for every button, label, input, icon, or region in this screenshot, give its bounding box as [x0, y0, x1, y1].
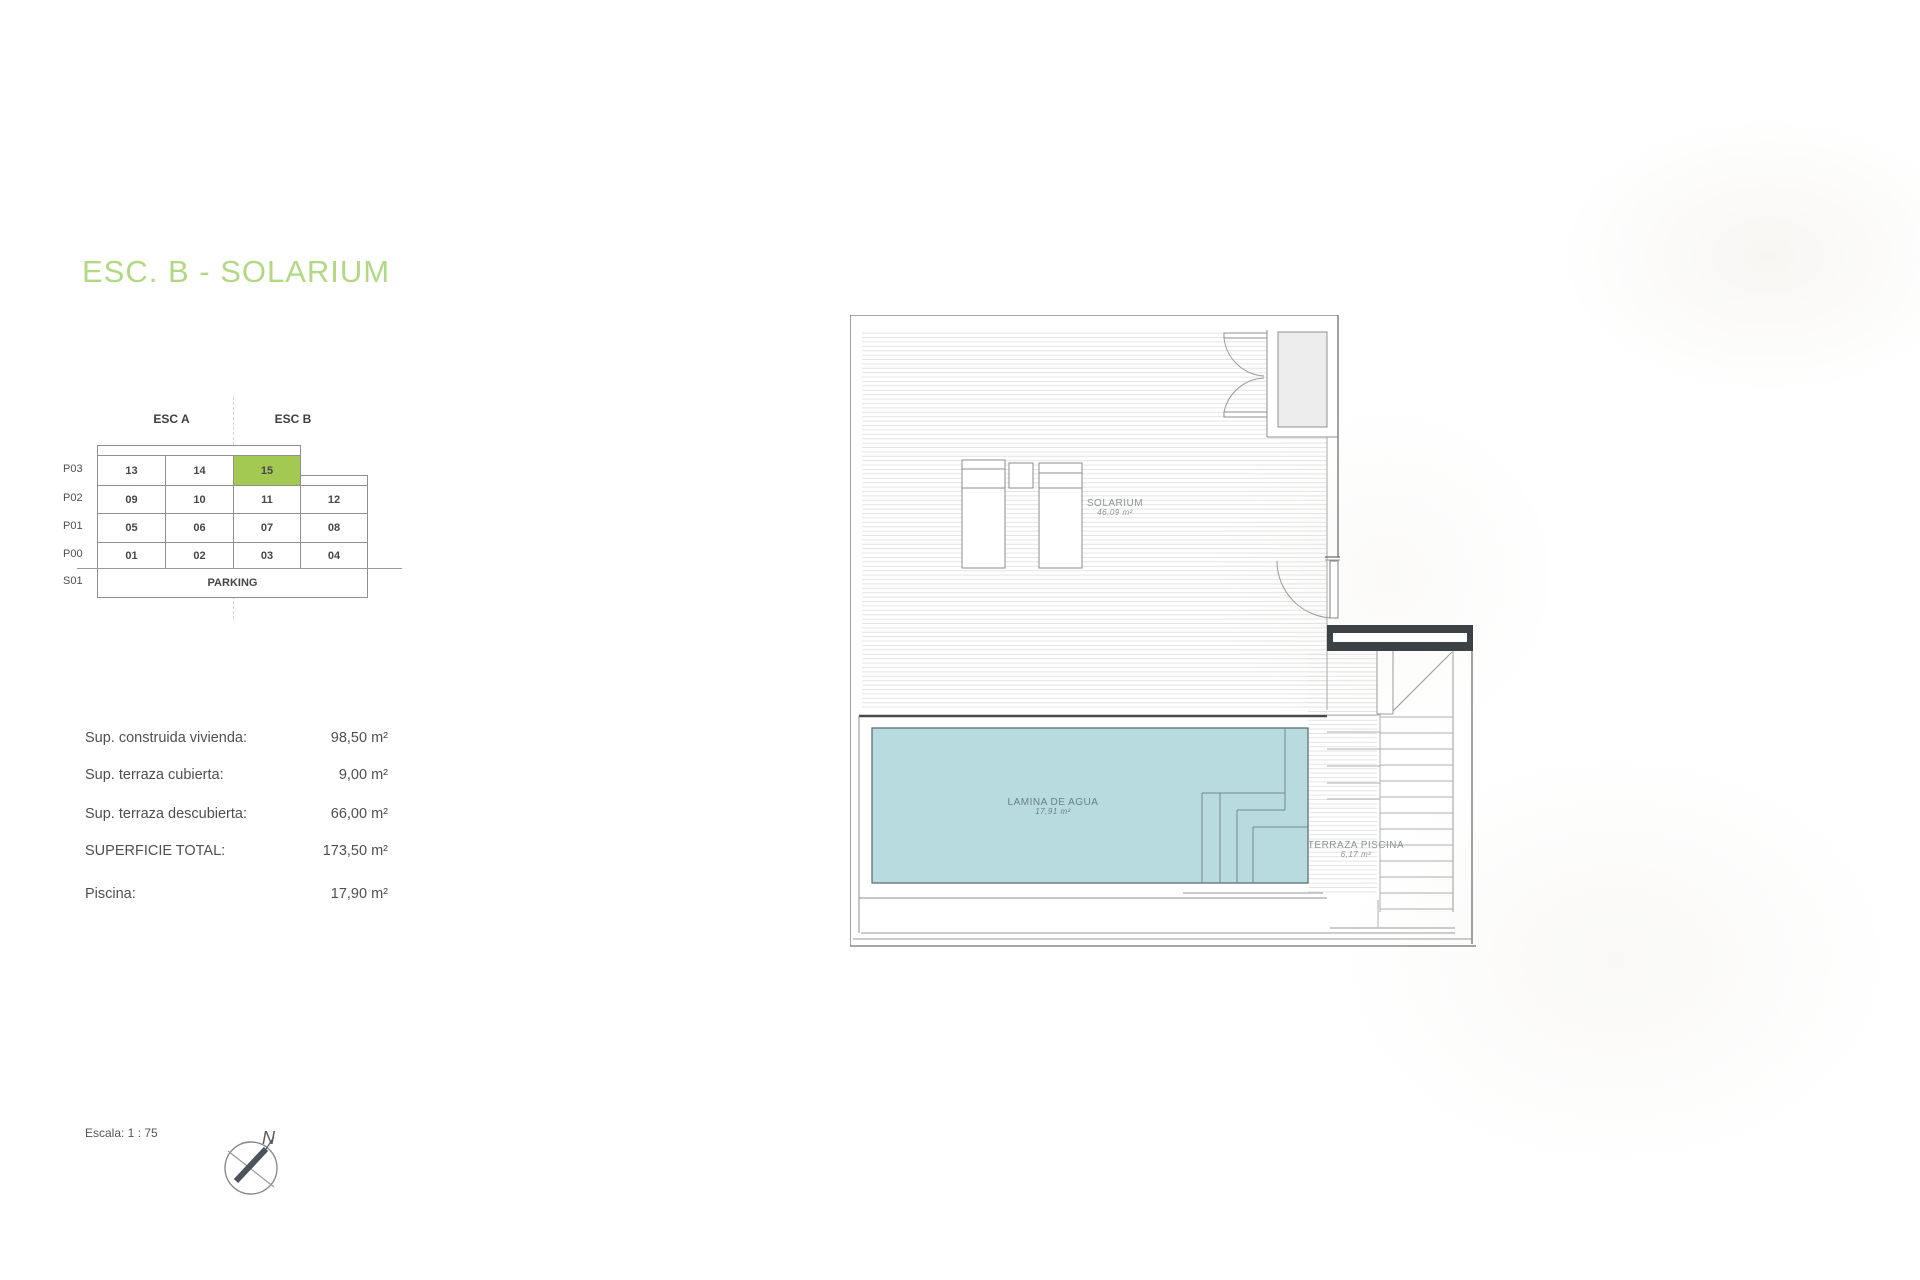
floor-plan: SOLARIUM 46,09 m² LAMINA DE AGUA 17,91 m…	[850, 315, 1478, 949]
solarium-label: SOLARIUM 46,09 m²	[1050, 498, 1180, 518]
stair-direction-diagonal	[1393, 652, 1452, 711]
page-title: ESC. B - SOLARIUM	[82, 254, 390, 290]
room-area: 46,09 m²	[1050, 509, 1180, 518]
measure-value: 17,90 m²	[238, 886, 388, 902]
compass-icon: N	[216, 1120, 290, 1202]
unit-cell-10: 10	[165, 485, 234, 514]
floor-label-s01: S01	[63, 575, 97, 587]
unit-cell-13: 13	[97, 455, 166, 486]
esc-b-header: ESC B	[233, 412, 353, 426]
unit-cell-14: 14	[165, 455, 234, 486]
unit-cell-05: 05	[97, 513, 166, 543]
unit-cell-15-highlighted: 15	[233, 455, 301, 486]
floor-label-p00: P00	[63, 548, 97, 560]
compass-north-letter: N	[262, 1128, 276, 1148]
solarium-deck-hatch	[862, 330, 1327, 710]
parking-cell: PARKING	[97, 568, 368, 598]
unit-cell-08: 08	[300, 513, 368, 543]
unit-cell-04: 04	[300, 542, 368, 569]
floor-label-p02: P02	[63, 492, 97, 504]
measure-value: 66,00 m²	[238, 806, 388, 822]
unit-cell-11: 11	[233, 485, 301, 514]
unit-cell-12: 12	[300, 485, 368, 514]
room-area: 6,17 m²	[1291, 851, 1421, 860]
side-table	[1009, 463, 1033, 488]
unit-cell-07: 07	[233, 513, 301, 543]
measure-value: 173,50 m²	[238, 843, 388, 859]
parapet-bar	[1327, 625, 1473, 651]
esc-a-header: ESC A	[110, 412, 233, 426]
floor-label-p03: P03	[63, 463, 97, 475]
shaft-box	[1278, 332, 1327, 427]
measure-value: 9,00 m²	[238, 767, 388, 783]
unit-cell-06: 06	[165, 513, 234, 543]
unit-cell-01: 01	[97, 542, 166, 569]
floor-label-p01: P01	[63, 520, 97, 532]
room-area: 17,91 m²	[988, 808, 1118, 817]
unit-cell-03: 03	[233, 542, 301, 569]
pool-terrace-label: TERRAZA PISCINA 6,17 m²	[1291, 840, 1421, 860]
unit-cell-02: 02	[165, 542, 234, 569]
scale-label: Escala: 1 : 75	[85, 1126, 158, 1140]
unit-cell-09: 09	[97, 485, 166, 514]
sun-lounger	[962, 460, 1005, 568]
stair-treads	[1380, 717, 1453, 909]
ground-line	[77, 568, 402, 569]
measure-value: 98,50 m²	[238, 730, 388, 746]
pool-label: LAMINA DE AGUA 17,91 m²	[988, 797, 1118, 817]
